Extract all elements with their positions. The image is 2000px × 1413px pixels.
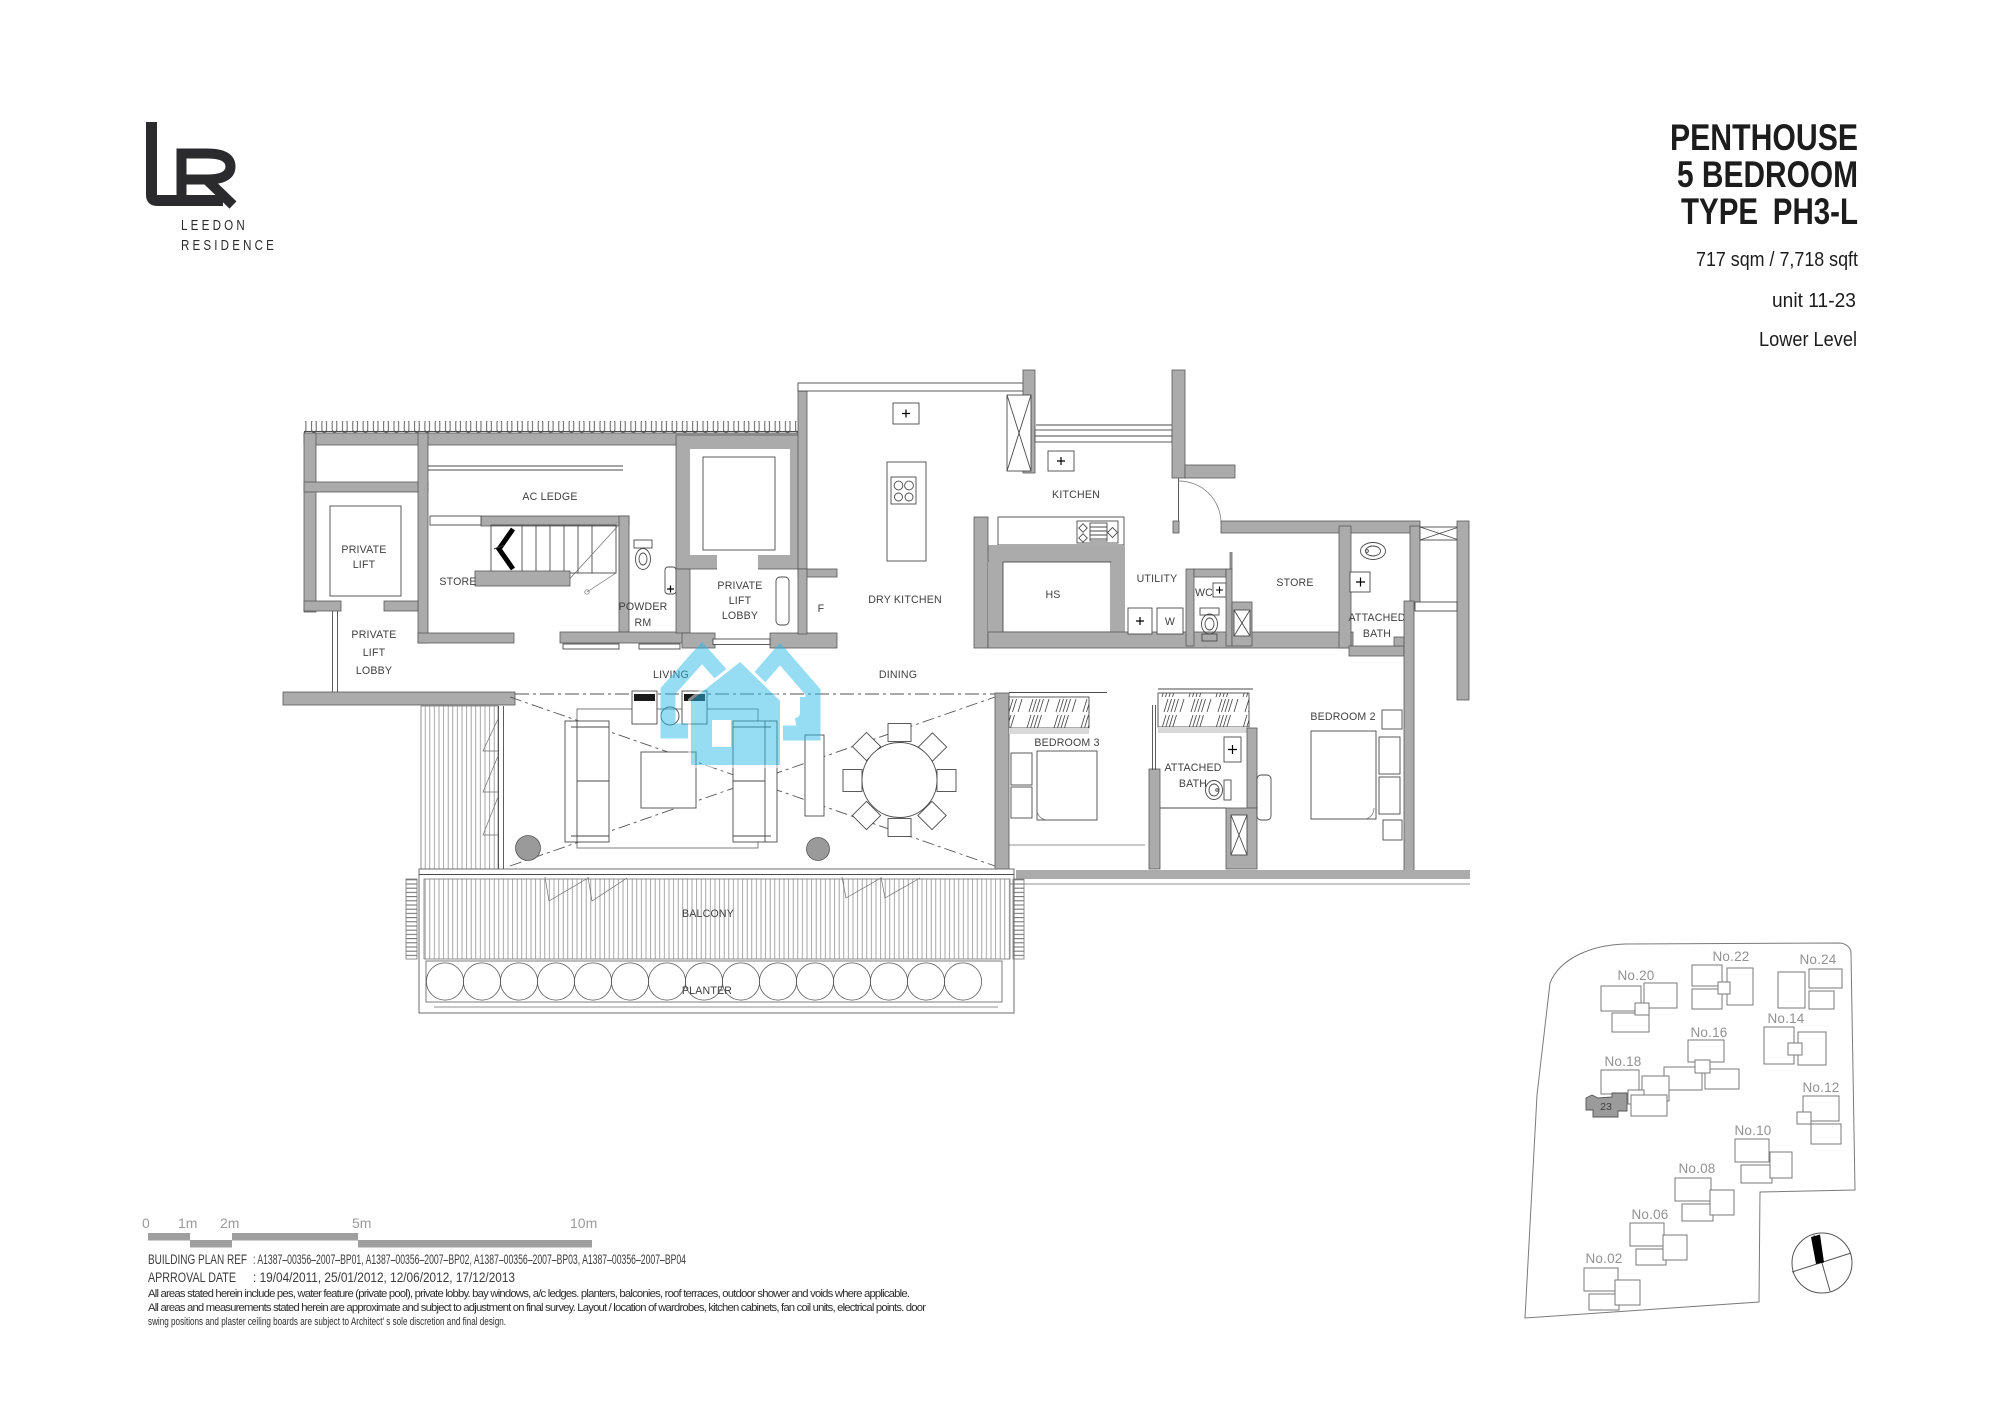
svg-text:LIFT: LIFT bbox=[729, 595, 752, 607]
svg-text:APRROVAL DATE: APRROVAL DATE bbox=[148, 1270, 236, 1285]
svg-text:No.14: No.14 bbox=[1767, 1011, 1804, 1026]
svg-text:BEDROOM 2: BEDROOM 2 bbox=[1310, 711, 1375, 723]
svg-text:LOBBY: LOBBY bbox=[356, 665, 392, 677]
svg-text:PLANTER: PLANTER bbox=[682, 985, 732, 997]
svg-text:PRIVATE: PRIVATE bbox=[341, 544, 386, 556]
svg-text:717 sqm / 7,718 sqft: 717 sqm / 7,718 sqft bbox=[1696, 248, 1858, 271]
svg-text:Lower Level: Lower Level bbox=[1759, 328, 1857, 351]
svg-text:STORE: STORE bbox=[1276, 577, 1313, 589]
svg-text:LIFT: LIFT bbox=[353, 559, 376, 571]
svg-text:No.24: No.24 bbox=[1799, 952, 1836, 967]
svg-text:LIFT: LIFT bbox=[363, 647, 386, 659]
svg-text:unit 11-23: unit 11-23 bbox=[1772, 289, 1856, 312]
svg-text:2m: 2m bbox=[220, 1215, 239, 1231]
svg-text:5 BEDROOM: 5 BEDROOM bbox=[1677, 154, 1858, 195]
svg-text:: 19/04/2011, 25/01/2012, 12/: : 19/04/2011, 25/01/2012, 12/06/2012, 17… bbox=[253, 1270, 515, 1285]
svg-text:All areas and measurements: All areas and measurements stated herein… bbox=[148, 1302, 926, 1314]
svg-text:All areas stated herein in: All areas stated herein include pes, wat… bbox=[148, 1288, 910, 1300]
svg-text:0: 0 bbox=[142, 1215, 150, 1231]
svg-text:No.18: No.18 bbox=[1604, 1054, 1641, 1069]
svg-text:RESIDENCE: RESIDENCE bbox=[181, 238, 277, 254]
svg-text:BATH: BATH bbox=[1363, 628, 1391, 640]
svg-text:No.22: No.22 bbox=[1712, 949, 1749, 964]
svg-text:No.16: No.16 bbox=[1690, 1025, 1727, 1040]
svg-text:No.10: No.10 bbox=[1734, 1123, 1771, 1138]
svg-text:POWDER: POWDER bbox=[619, 601, 668, 613]
svg-text:PENTHOUSE: PENTHOUSE bbox=[1670, 117, 1858, 158]
svg-text:PRIVATE: PRIVATE bbox=[717, 580, 762, 592]
svg-text:DRY KITCHEN: DRY KITCHEN bbox=[868, 594, 942, 606]
svg-text:DINING: DINING bbox=[879, 669, 917, 681]
svg-text:BEDROOM 3: BEDROOM 3 bbox=[1034, 737, 1099, 749]
svg-text:No.20: No.20 bbox=[1617, 968, 1654, 983]
svg-text:BALCONY: BALCONY bbox=[682, 908, 734, 920]
svg-text:STORE: STORE bbox=[439, 576, 476, 588]
svg-text:swing positions and plaster ce: swing positions and plaster ceiling boar… bbox=[148, 1316, 506, 1328]
svg-text:KITCHEN: KITCHEN bbox=[1052, 489, 1100, 501]
svg-text:TYPE PH3-L: TYPE PH3-L bbox=[1681, 191, 1858, 232]
svg-text:LEEDON: LEEDON bbox=[181, 218, 248, 234]
svg-text:RM: RM bbox=[635, 617, 652, 629]
svg-text:: A1387–00356–2007–BP01, A138: : A1387–00356–2007–BP01, A1387–00356–200… bbox=[253, 1252, 686, 1267]
svg-text:No.08: No.08 bbox=[1678, 1161, 1715, 1176]
svg-text:ATTACHED: ATTACHED bbox=[1348, 612, 1405, 624]
svg-text:WC: WC bbox=[1195, 587, 1213, 599]
svg-text:UTILITY: UTILITY bbox=[1137, 573, 1178, 585]
svg-text:No.12: No.12 bbox=[1802, 1080, 1839, 1095]
svg-text:1m: 1m bbox=[178, 1215, 197, 1231]
svg-text:No.02: No.02 bbox=[1585, 1251, 1622, 1266]
svg-text:ATTACHED: ATTACHED bbox=[1164, 762, 1221, 774]
svg-text:HS: HS bbox=[1045, 589, 1060, 601]
svg-text:AC LEDGE: AC LEDGE bbox=[522, 491, 577, 503]
svg-text:F: F bbox=[818, 603, 825, 615]
svg-text:W: W bbox=[1165, 616, 1175, 628]
svg-text:5m: 5m bbox=[352, 1215, 371, 1231]
svg-text:No.06: No.06 bbox=[1631, 1207, 1668, 1222]
svg-text:BUILDING PLAN REF: BUILDING PLAN REF bbox=[148, 1252, 247, 1267]
svg-text:10m: 10m bbox=[570, 1215, 597, 1231]
svg-text:LOBBY: LOBBY bbox=[722, 610, 758, 622]
svg-text:BATH: BATH bbox=[1179, 778, 1207, 790]
svg-text:PRIVATE: PRIVATE bbox=[351, 629, 396, 641]
svg-text:23: 23 bbox=[1600, 1101, 1612, 1113]
